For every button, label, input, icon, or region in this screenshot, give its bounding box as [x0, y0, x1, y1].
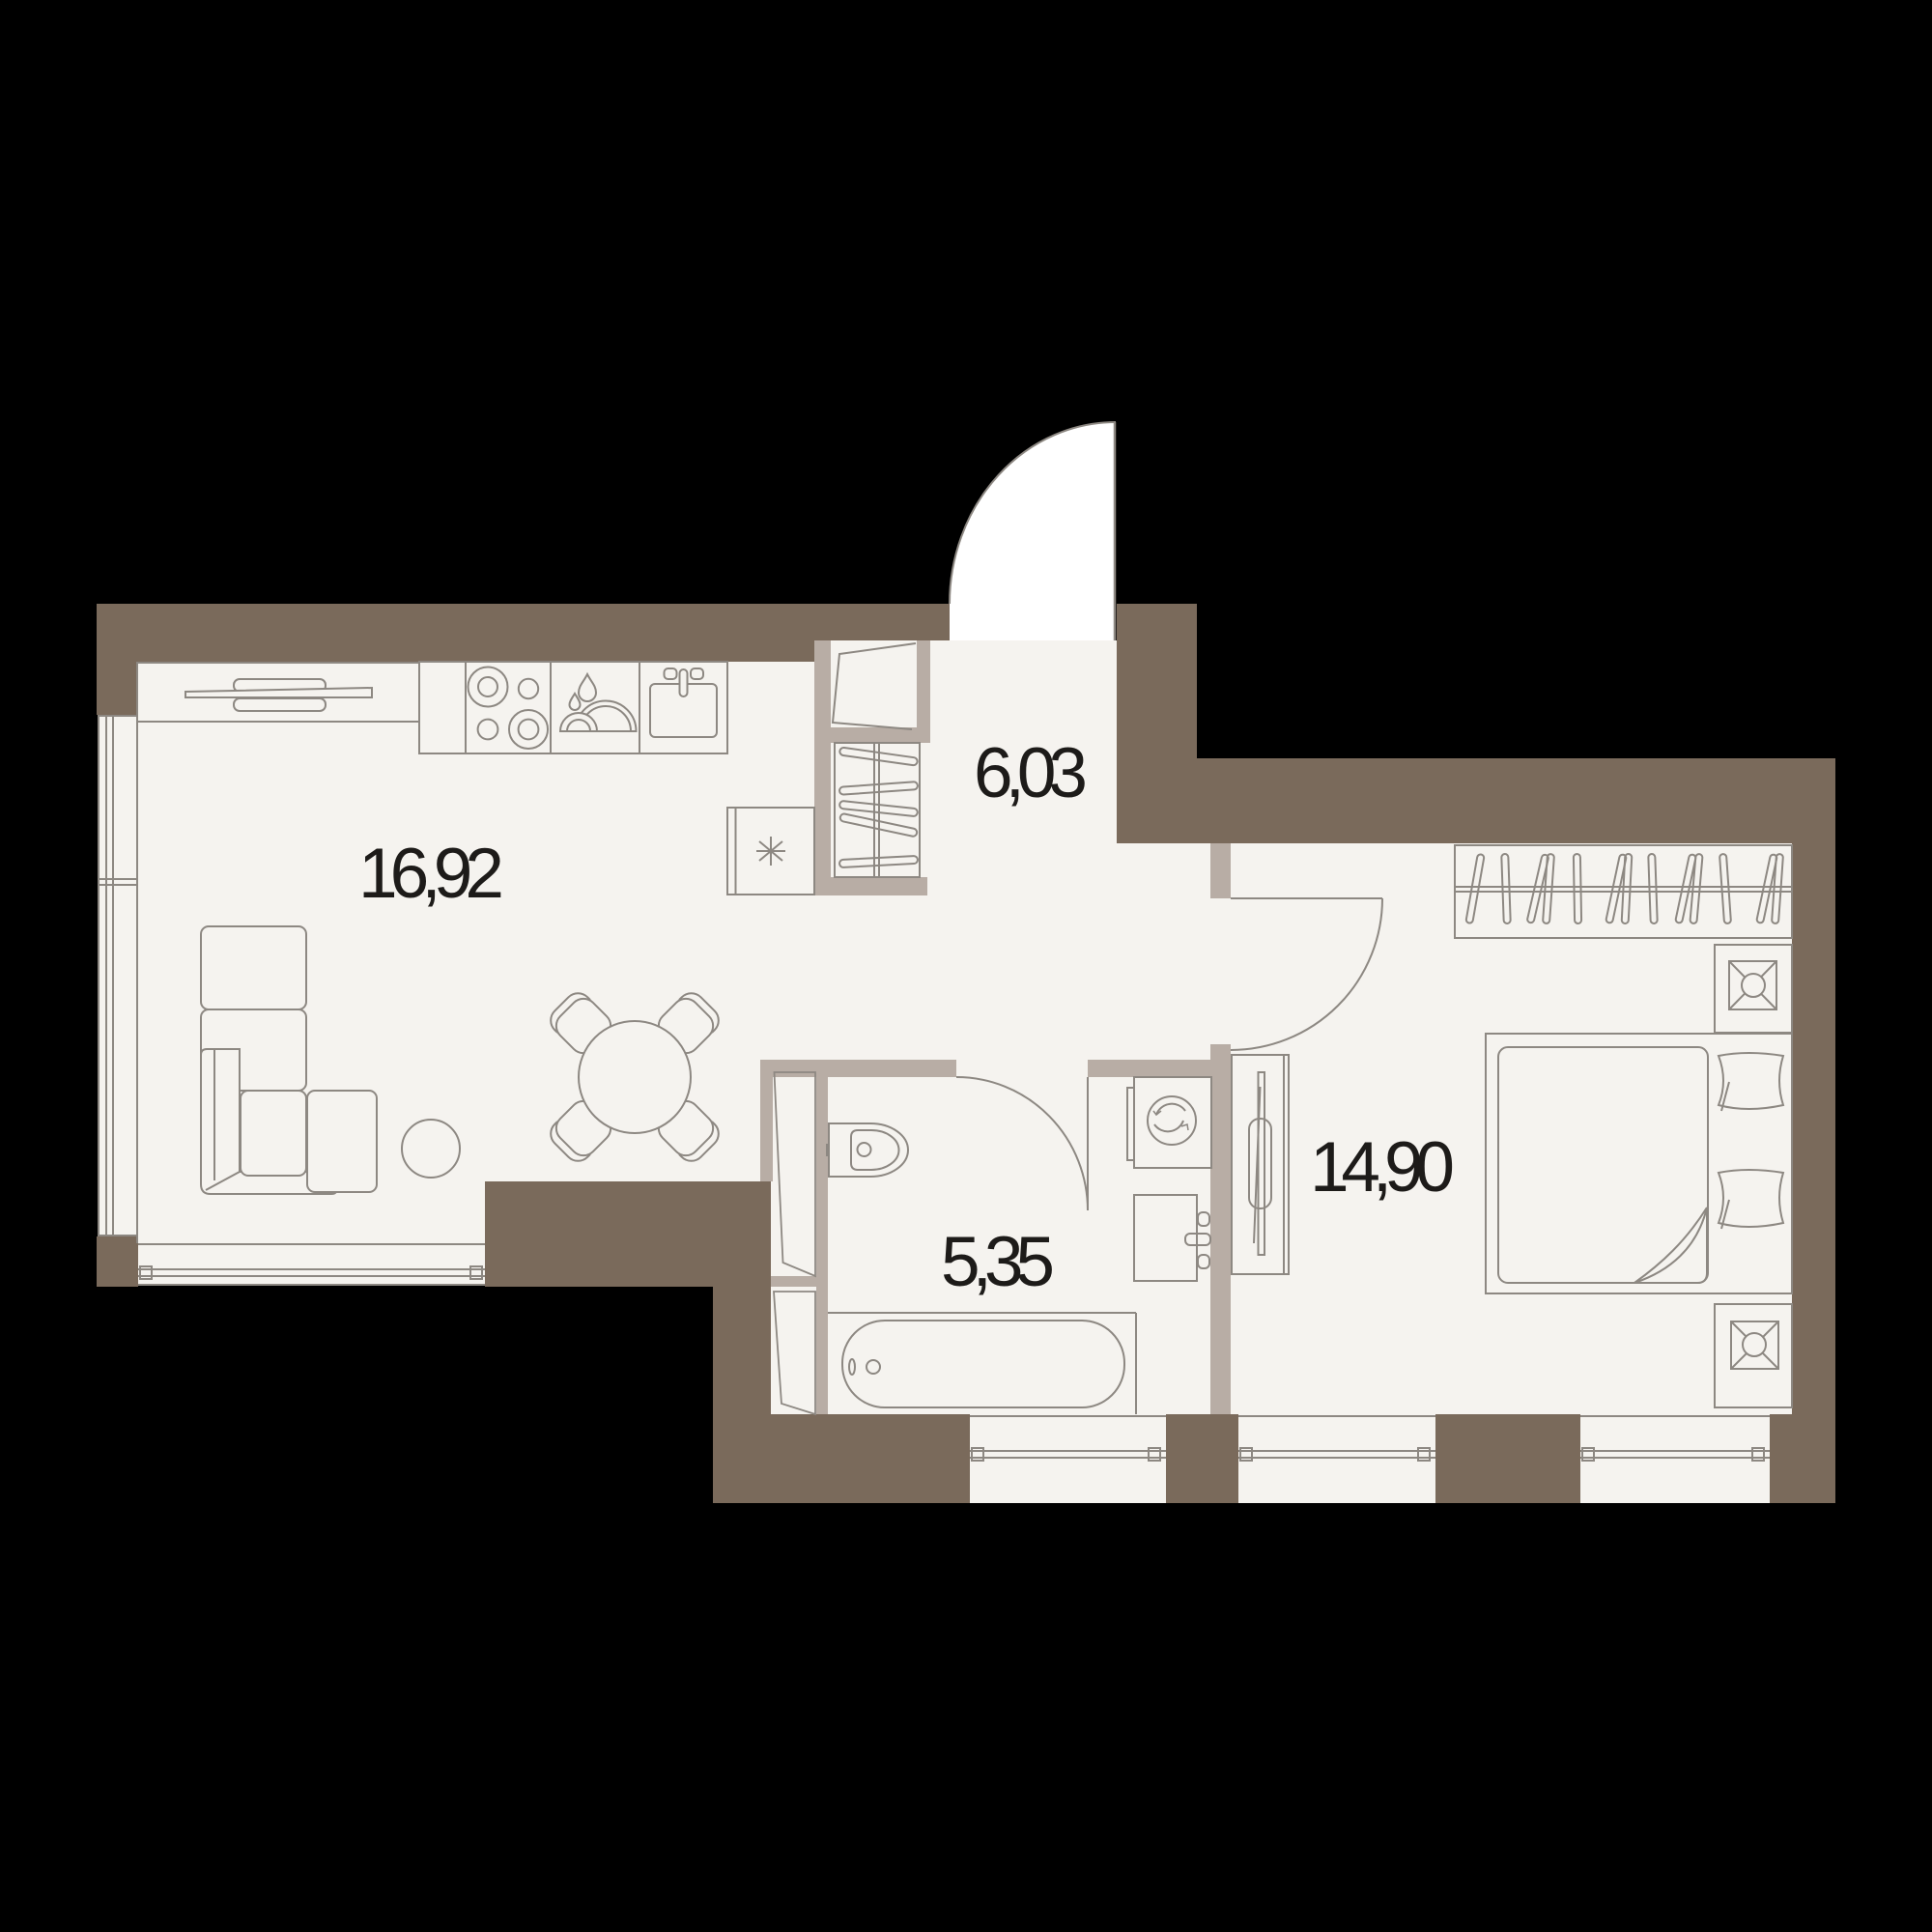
svg-text:5,35: 5,35 [941, 1223, 1055, 1301]
svg-text:14,90: 14,90 [1310, 1128, 1455, 1207]
svg-text:6,03: 6,03 [974, 734, 1088, 812]
svg-text:16,92: 16,92 [358, 835, 504, 913]
